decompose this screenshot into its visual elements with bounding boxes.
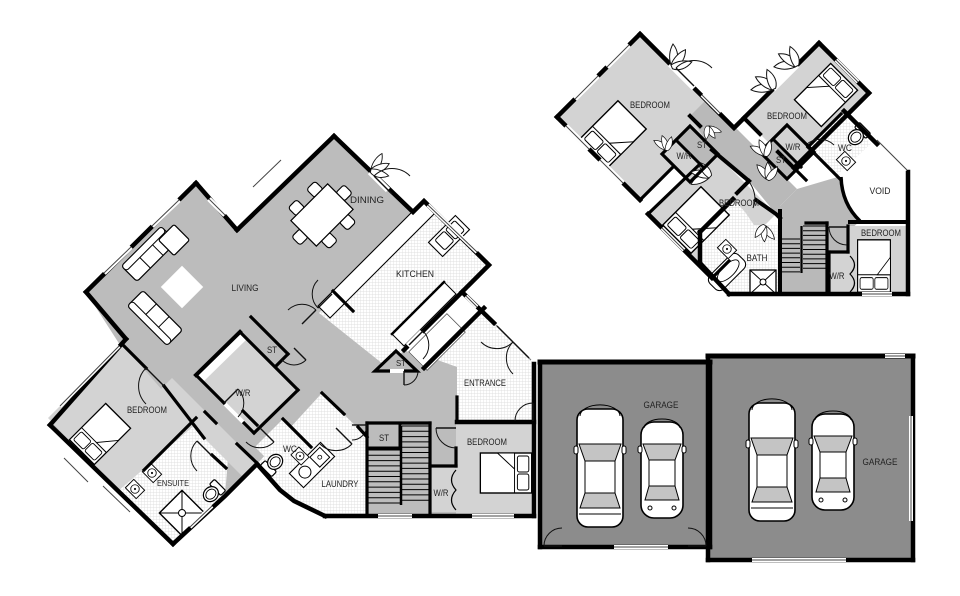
svg-text:BEDROOM: BEDROOM [467, 437, 507, 447]
svg-text:GARAGE: GARAGE [863, 457, 898, 467]
svg-text:ST: ST [267, 345, 277, 355]
svg-text:BEDROOM: BEDROOM [127, 405, 167, 415]
svg-text:WC: WC [283, 444, 297, 454]
svg-text:BEDROOM: BEDROOM [861, 228, 901, 238]
svg-text:ST: ST [396, 359, 406, 368]
svg-text:ENTRANCE: ENTRANCE [464, 378, 506, 388]
svg-text:VOID: VOID [870, 186, 891, 196]
svg-text:BEDROOM: BEDROOM [719, 198, 759, 208]
svg-text:BATH: BATH [747, 253, 768, 263]
svg-text:GARAGE: GARAGE [644, 400, 679, 410]
svg-text:W/R: W/R [830, 271, 845, 281]
svg-text:W/R: W/R [786, 142, 801, 152]
svg-text:W/R: W/R [434, 488, 449, 498]
svg-text:LIVING: LIVING [232, 283, 259, 293]
svg-text:W/R: W/R [677, 151, 692, 161]
svg-text:ST: ST [379, 433, 389, 443]
svg-text:ST: ST [776, 155, 786, 165]
svg-text:BEDROOM: BEDROOM [767, 111, 807, 121]
svg-text:KITCHEN: KITCHEN [396, 269, 434, 279]
svg-text:BEDROOM: BEDROOM [630, 100, 670, 110]
svg-text:ENSUITE: ENSUITE [157, 479, 189, 488]
svg-text:W/R: W/R [236, 388, 251, 398]
svg-text:ST: ST [697, 140, 707, 150]
svg-text:DINING: DINING [350, 195, 384, 205]
svg-text:WC: WC [838, 143, 852, 153]
svg-text:LAUNDRY: LAUNDRY [322, 479, 359, 489]
